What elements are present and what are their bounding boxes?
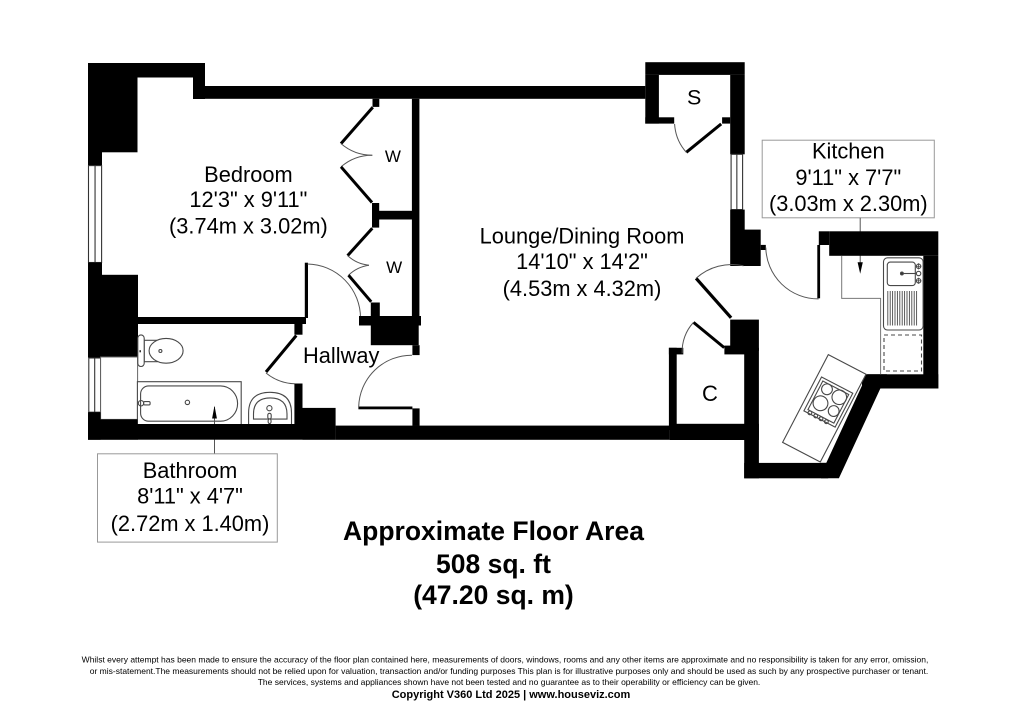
svg-text:9'11" x 7'7": 9'11" x 7'7" bbox=[795, 165, 901, 190]
svg-text:(47.20 sq. m): (47.20 sq. m) bbox=[413, 580, 574, 610]
svg-text:C: C bbox=[702, 381, 718, 406]
svg-text:8'11" x 4'7": 8'11" x 4'7" bbox=[137, 483, 243, 508]
svg-text:W: W bbox=[386, 258, 402, 277]
svg-text:Whilst every attempt has been: Whilst every attempt has been made to en… bbox=[82, 655, 929, 665]
svg-text:Bathroom: Bathroom bbox=[143, 458, 238, 483]
svg-text:Copyright V360 Ltd 2025 | www.: Copyright V360 Ltd 2025 | www.houseviz.c… bbox=[392, 689, 631, 701]
svg-text:508 sq. ft: 508 sq. ft bbox=[436, 549, 551, 579]
svg-text:Hallway: Hallway bbox=[303, 343, 379, 368]
svg-text:Lounge/Dining Room: Lounge/Dining Room bbox=[480, 224, 685, 249]
svg-text:Bedroom: Bedroom bbox=[204, 162, 292, 187]
svg-text:(3.03m x 2.30m): (3.03m x 2.30m) bbox=[769, 191, 928, 216]
svg-text:14'10" x 14'2": 14'10" x 14'2" bbox=[516, 249, 648, 274]
svg-text:The services, systems and appl: The services, systems and appliances sho… bbox=[258, 677, 761, 687]
svg-text:(4.53m x 4.32m): (4.53m x 4.32m) bbox=[503, 276, 662, 301]
svg-text:W: W bbox=[385, 147, 401, 166]
svg-text:or mis-statement.The measureme: or mis-statement.The measurements should… bbox=[90, 666, 929, 676]
svg-text:Kitchen: Kitchen bbox=[812, 139, 885, 164]
svg-text:(3.74m x 3.02m): (3.74m x 3.02m) bbox=[169, 213, 328, 238]
svg-text:(2.72m x 1.40m): (2.72m x 1.40m) bbox=[111, 511, 270, 536]
svg-text:S: S bbox=[687, 86, 701, 110]
svg-text:Approximate Floor Area: Approximate Floor Area bbox=[343, 516, 644, 546]
svg-text:12'3" x 9'11": 12'3" x 9'11" bbox=[189, 187, 307, 212]
